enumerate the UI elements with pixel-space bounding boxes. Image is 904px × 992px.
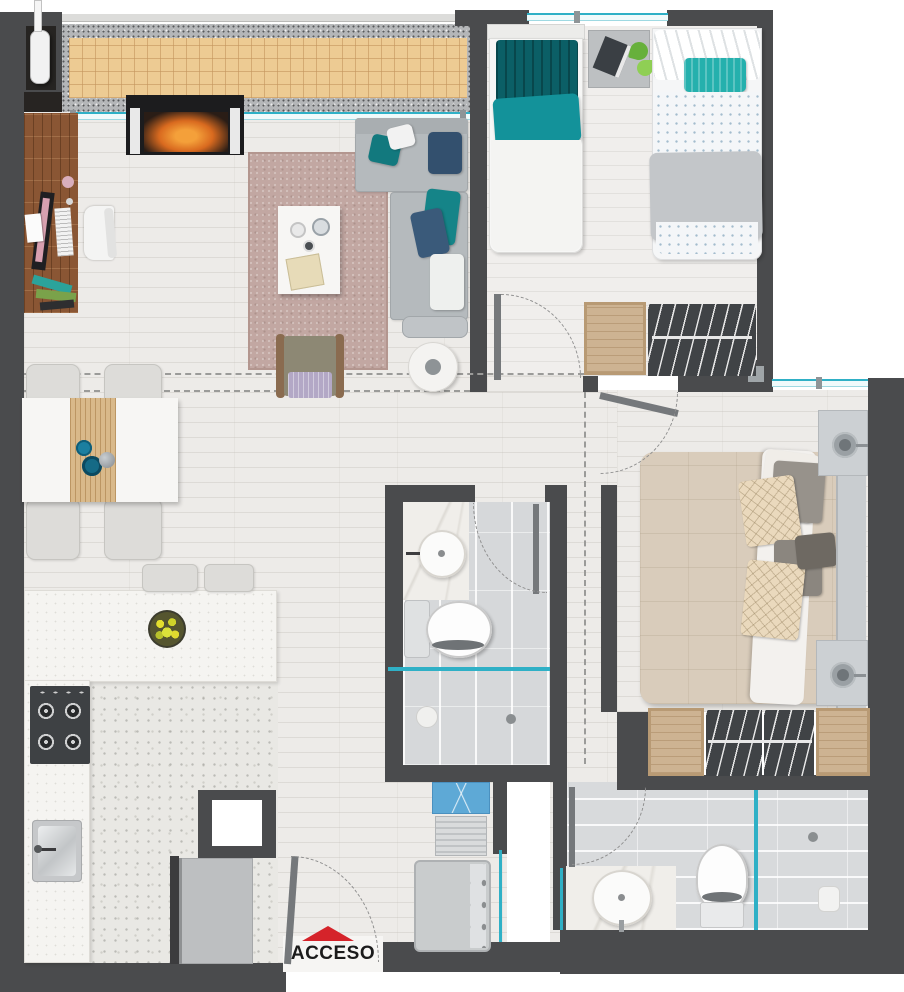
dining-chair xyxy=(26,498,80,560)
heater-pipe xyxy=(34,0,42,32)
bedroom1-wardrobe-shelf xyxy=(584,302,646,375)
cooktop-burner xyxy=(62,700,84,722)
cooktop-burner xyxy=(62,731,84,753)
master-wardrobe-hangers xyxy=(764,710,814,776)
shower1-drain xyxy=(506,714,516,724)
master-pillow-checkered2 xyxy=(740,559,806,641)
lamp-arm xyxy=(856,444,868,447)
cooktop-knobs xyxy=(36,690,84,695)
terrace-parapet xyxy=(56,14,480,22)
bar-stool xyxy=(142,564,198,592)
desk-papers xyxy=(25,213,44,243)
floor-plan: ACCESO xyxy=(0,0,904,992)
cooktop-burner xyxy=(35,700,57,722)
table-sphere xyxy=(99,452,115,468)
dining-chair xyxy=(104,498,162,560)
washing-machine-panel xyxy=(470,864,486,948)
bathroom1-sink-drain xyxy=(438,550,445,557)
shower1-shelf xyxy=(416,706,438,728)
table-vase-teal xyxy=(76,440,92,456)
bar-stool xyxy=(204,564,254,592)
nightstand-plant-leaf xyxy=(637,60,653,76)
wardrobe-rail-line xyxy=(708,740,812,743)
utility-pipe-line xyxy=(499,850,502,942)
bathroom2-toilet-seat-line xyxy=(702,892,742,902)
fireplace-jamb-right xyxy=(230,108,240,154)
wall-right xyxy=(868,378,904,938)
wall-corridor-stub xyxy=(601,485,617,712)
terrace-border-top xyxy=(56,24,480,38)
bedroom1-door-leaf xyxy=(494,294,501,380)
terrace-border-bottom xyxy=(56,98,467,112)
fridge-hinge xyxy=(170,856,179,964)
wall-bathroom1-right xyxy=(550,495,567,782)
master-pillow-checkered xyxy=(738,474,803,547)
refrigerator xyxy=(179,858,253,964)
shower2-glass-panel xyxy=(754,790,758,930)
shower1-glass-panel xyxy=(388,667,550,671)
bed2-sheet-bottom xyxy=(656,222,758,254)
bathroom2-faucet xyxy=(619,920,624,932)
laundry-sink-top xyxy=(432,782,490,814)
kitchen-counter-top xyxy=(24,590,277,682)
window-mullion xyxy=(816,377,822,389)
wall-bathroom1-top xyxy=(385,485,475,502)
table-book xyxy=(285,253,324,290)
ceiling-projection-line xyxy=(24,390,470,392)
wall-shaft-left xyxy=(493,782,507,854)
master-wardrobe-shelf-left xyxy=(648,708,704,776)
cup xyxy=(290,222,306,238)
desk-mouse xyxy=(66,198,73,205)
nightstand-lamp-shade xyxy=(839,439,851,451)
wall-left xyxy=(0,12,24,975)
wall-bottom-left xyxy=(0,963,286,992)
wall-wardrobe-rail xyxy=(647,775,870,790)
shaft-opening xyxy=(212,800,262,846)
fireplace-jamb-left xyxy=(130,108,140,154)
water-heater xyxy=(30,30,50,84)
window-mullion xyxy=(574,11,580,23)
bathroom2-toilet-tank xyxy=(700,902,744,928)
bed2-knit-pillow xyxy=(684,58,746,92)
small-dish xyxy=(303,240,315,252)
wall-wardrobe-left-block xyxy=(617,712,648,790)
kitchen-sink-basin xyxy=(38,826,76,876)
lemon-bowl xyxy=(150,612,184,646)
shower2-drain xyxy=(808,832,818,842)
bedroom1-wardrobe-hangers xyxy=(648,304,756,376)
desk-pink-disc xyxy=(62,176,74,188)
bathroom2-sink-drain xyxy=(618,894,625,901)
side-table-tray xyxy=(425,359,441,375)
bedroom1-window xyxy=(527,13,668,21)
kitchen-faucet-base xyxy=(34,845,42,853)
lamp-arm xyxy=(854,674,866,677)
fireplace-fire xyxy=(144,112,228,152)
bed1-duvet-fold xyxy=(492,93,581,147)
toilet-paper-holder xyxy=(818,886,840,912)
terrace-tile-deck xyxy=(69,38,467,98)
wall-bedroom1-left xyxy=(470,12,487,392)
bed1-sheet xyxy=(491,140,581,251)
bed1-duvet-dark-teal xyxy=(496,40,578,102)
bathroom1-toilet-seat-line xyxy=(432,640,484,650)
wall-bottom-right xyxy=(560,930,904,974)
duct-shaft xyxy=(507,782,550,942)
cooktop-burner xyxy=(35,731,57,753)
utility-pipe-line xyxy=(560,868,563,930)
cup xyxy=(312,218,330,236)
bedroom1-door-floor xyxy=(487,376,583,392)
wardrobe-rail-line xyxy=(652,336,752,339)
cooktop xyxy=(30,686,90,764)
sofa-pillow-navy xyxy=(428,132,462,174)
corridor-projection-line xyxy=(584,392,586,764)
master-wardrobe-hangers xyxy=(706,710,762,776)
refrigerator-seam xyxy=(179,858,182,964)
sofa-pillow-knit xyxy=(430,254,464,310)
wall-bathroom1-left xyxy=(385,485,403,782)
closet-shelf xyxy=(20,92,62,112)
nightstand-lamp-shade xyxy=(837,669,849,681)
master-wardrobe-shelf-right xyxy=(816,708,870,776)
bathroom1-tap xyxy=(406,552,420,555)
armchair-throw xyxy=(288,372,332,398)
desk-keyboard xyxy=(54,208,73,257)
armchair-arm-right xyxy=(335,334,344,398)
laundry-washboard xyxy=(435,816,487,856)
sofa-armrest xyxy=(402,316,468,338)
wall-bathroom1-bottom xyxy=(385,765,567,782)
wall-master-top-a xyxy=(583,376,598,392)
master-pillow-dark xyxy=(794,532,837,570)
